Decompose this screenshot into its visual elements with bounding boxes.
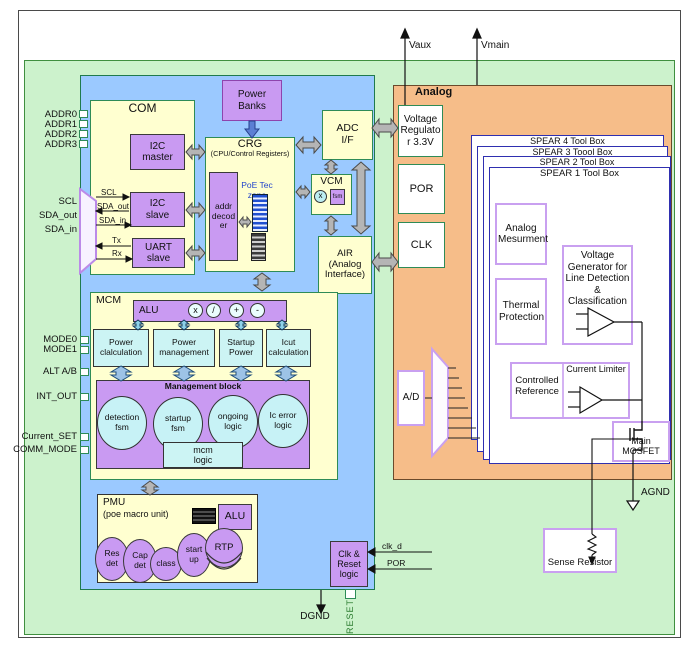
- main-mosfet-block: Main MOSFET: [612, 421, 670, 462]
- pin-addr0-pad: [79, 110, 88, 118]
- thermal-protection-block: Thermal Protection: [495, 278, 547, 345]
- pin-current-set-label: Current_SET: [16, 431, 77, 442]
- pin-sda-out-pad: [79, 211, 88, 219]
- sense-resistor-block: Sense Resistor: [543, 528, 617, 573]
- controlled-ref-label: Controlled Reference: [512, 375, 562, 397]
- pin-alt-ab-pad: [80, 368, 89, 376]
- pin-scl-pad: [79, 197, 88, 205]
- pin-mode1-label: MODE1: [22, 344, 77, 355]
- alu-op-add: +: [229, 303, 244, 318]
- rtp-ellipse: RTP: [205, 528, 243, 568]
- mcm-title: MCM: [96, 294, 121, 306]
- pin-int-out-label: INT_OUT: [22, 391, 77, 402]
- pmu-subtitle: (poe macro unit): [103, 509, 169, 519]
- vcm-mult-circle: x: [314, 190, 327, 203]
- startup-power-block: Startup Power: [219, 329, 263, 367]
- com-scl-signal-label: SCL: [101, 188, 117, 197]
- current-limiter-label: Current Limiter: [564, 364, 628, 374]
- voltage-generator-block: Voltage Generator for Line Detection & C…: [562, 245, 633, 345]
- analog-region-title: Analog: [415, 86, 452, 98]
- i2c-master-block: I2C master: [130, 134, 185, 170]
- pin-addr3-pad: [79, 140, 88, 148]
- voltage-regulator-block: Voltage Regulator 3.3V: [398, 105, 443, 157]
- spear1-toolbox-title: SPEAR 1 Tool Box: [489, 169, 670, 180]
- pin-mode0-pad: [80, 336, 89, 344]
- vcm-title: VCM: [311, 176, 352, 187]
- uart-slave-block: UART slave: [132, 238, 185, 268]
- ongoing-logic-circle: ongoing logic: [208, 395, 258, 449]
- crg-subtitle: (CPU/Control Registers): [205, 150, 295, 158]
- por-signal-label: POR: [387, 558, 405, 568]
- reset-pin-label: RESET: [345, 594, 355, 634]
- power-calculation-block: Power clalculation: [93, 329, 149, 367]
- pin-scl-label: SCL: [29, 196, 77, 207]
- vcm-fsm-block: fsm: [330, 189, 345, 205]
- pin-addr2-pad: [79, 130, 88, 138]
- icut-calculation-block: Icut calculation: [266, 329, 311, 367]
- mcm-alu-label: ALU: [139, 305, 158, 316]
- com-tx-signal-label: Tx: [112, 236, 121, 245]
- ad-block: A/D: [397, 370, 425, 426]
- pin-comm-mode-pad: [80, 446, 89, 454]
- por-block: POR: [398, 164, 445, 214]
- clk-block: CLK: [398, 222, 445, 268]
- poe-controller-block-diagram: Analog ADDR0 ADDR1 ADDR2 ADDR3 SCL SDA_o…: [0, 0, 700, 650]
- vaux-label: Vaux: [409, 40, 431, 51]
- pmu-alu-block: ALU: [218, 504, 252, 530]
- pin-sda-out-label: SDA_out: [29, 210, 77, 221]
- com-sda-in-signal-label: SDA_in: [99, 216, 126, 225]
- clk-reset-logic-block: Clk & Reset logic: [330, 541, 368, 587]
- management-block-title: Management block: [96, 382, 310, 392]
- pin-mode1-pad: [80, 346, 89, 354]
- pin-sda-in-label: SDA_in: [29, 224, 77, 235]
- spear4-toolbox-title: SPEAR 4 Tool Box: [471, 136, 664, 146]
- register-stack-gray: [251, 233, 266, 261]
- vmain-label: Vmain: [481, 40, 509, 51]
- air-block: AIR (Analog Interface): [318, 236, 372, 294]
- dgnd-label: DGND: [294, 611, 336, 622]
- agnd-label: AGND: [641, 487, 670, 498]
- power-management-block: Power management: [153, 329, 215, 367]
- analog-measurement-block: Analog Mesurment: [495, 203, 547, 265]
- pin-alt-ab-label: ALT A/B: [22, 366, 77, 377]
- com-sda-out-signal-label: SDA_out: [97, 202, 129, 211]
- pin-sda-in-pad: [79, 225, 88, 233]
- com-rx-signal-label: Rx: [112, 249, 122, 258]
- i2c-slave-block: I2C slave: [130, 192, 185, 227]
- pin-addr3-label: ADDR3: [29, 139, 77, 150]
- adc-if-block: ADC I/F: [322, 110, 373, 160]
- pin-addr1-pad: [79, 120, 88, 128]
- detection-fsm-circle: detection fsm: [97, 396, 147, 450]
- alu-op-mul: x: [188, 303, 203, 318]
- alu-op-div: /: [206, 303, 221, 318]
- alu-op-sub: -: [250, 303, 265, 318]
- pmu-title: PMU: [103, 497, 125, 508]
- pmu-stack-icon: [192, 508, 216, 524]
- pin-comm-mode-label: COMM_MODE: [10, 444, 77, 455]
- pin-int-out-pad: [80, 393, 89, 401]
- com-title: COM: [90, 102, 195, 115]
- pin-current-set-pad: [80, 433, 89, 441]
- ic-error-logic-circle: Ic error logic: [258, 394, 308, 448]
- power-banks-block: Power Banks: [222, 80, 282, 121]
- addr-decoder-block: addr decoder: [209, 172, 238, 261]
- register-stack-blue: [252, 194, 268, 232]
- clk-d-signal-label: clk_d: [382, 541, 402, 551]
- spear2-toolbox-title: SPEAR 2 Tool Box: [483, 157, 671, 167]
- mcm-logic-block: mcm logic: [163, 442, 243, 468]
